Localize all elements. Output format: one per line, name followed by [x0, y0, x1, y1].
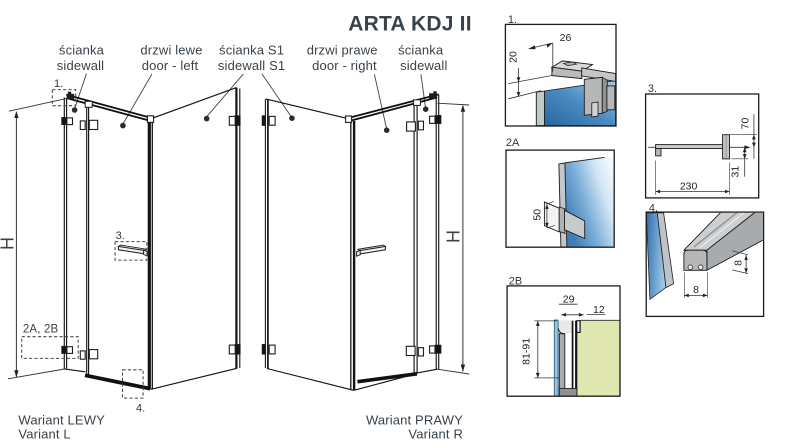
svg-text:drzwi lewe: drzwi lewe [140, 42, 202, 57]
svg-text:8: 8 [693, 284, 699, 296]
svg-text:2A, 2B: 2A, 2B [23, 323, 59, 335]
svg-text:ścianka S1: ścianka S1 [219, 42, 284, 57]
svg-text:3.: 3. [648, 83, 657, 95]
svg-text:sidewall S1: sidewall S1 [218, 58, 285, 73]
svg-text:ścianka: ścianka [59, 42, 105, 57]
svg-text:81-91: 81-91 [521, 338, 533, 365]
svg-text:Variant L: Variant L [18, 427, 70, 442]
svg-text:26: 26 [560, 32, 572, 44]
svg-text:H: H [443, 230, 463, 243]
svg-text:door - right: door - right [312, 58, 377, 73]
svg-text:20: 20 [508, 51, 520, 63]
svg-text:Wariant PRAWY: Wariant PRAWY [366, 412, 463, 427]
svg-text:50: 50 [531, 209, 543, 221]
svg-text:3.: 3. [116, 230, 125, 242]
svg-text:31: 31 [730, 166, 742, 178]
svg-text:H: H [0, 237, 18, 250]
svg-text:sidewall: sidewall [400, 58, 447, 73]
svg-text:Variant R: Variant R [408, 427, 463, 442]
svg-text:ścianka: ścianka [398, 42, 444, 57]
svg-text:1.: 1. [54, 78, 63, 90]
svg-text:230: 230 [680, 180, 698, 192]
svg-text:29: 29 [563, 293, 575, 305]
svg-text:sidewall: sidewall [57, 58, 104, 73]
svg-text:Wariant LEWY: Wariant LEWY [18, 412, 105, 427]
svg-text:door - left: door - left [142, 58, 199, 73]
svg-text:4.: 4. [136, 402, 145, 414]
svg-text:2A: 2A [506, 137, 520, 149]
svg-text:drzwi prawe: drzwi prawe [307, 42, 378, 57]
svg-text:ARTA KDJ II: ARTA KDJ II [348, 13, 472, 36]
svg-text:8: 8 [733, 260, 745, 266]
svg-text:70: 70 [740, 118, 752, 130]
